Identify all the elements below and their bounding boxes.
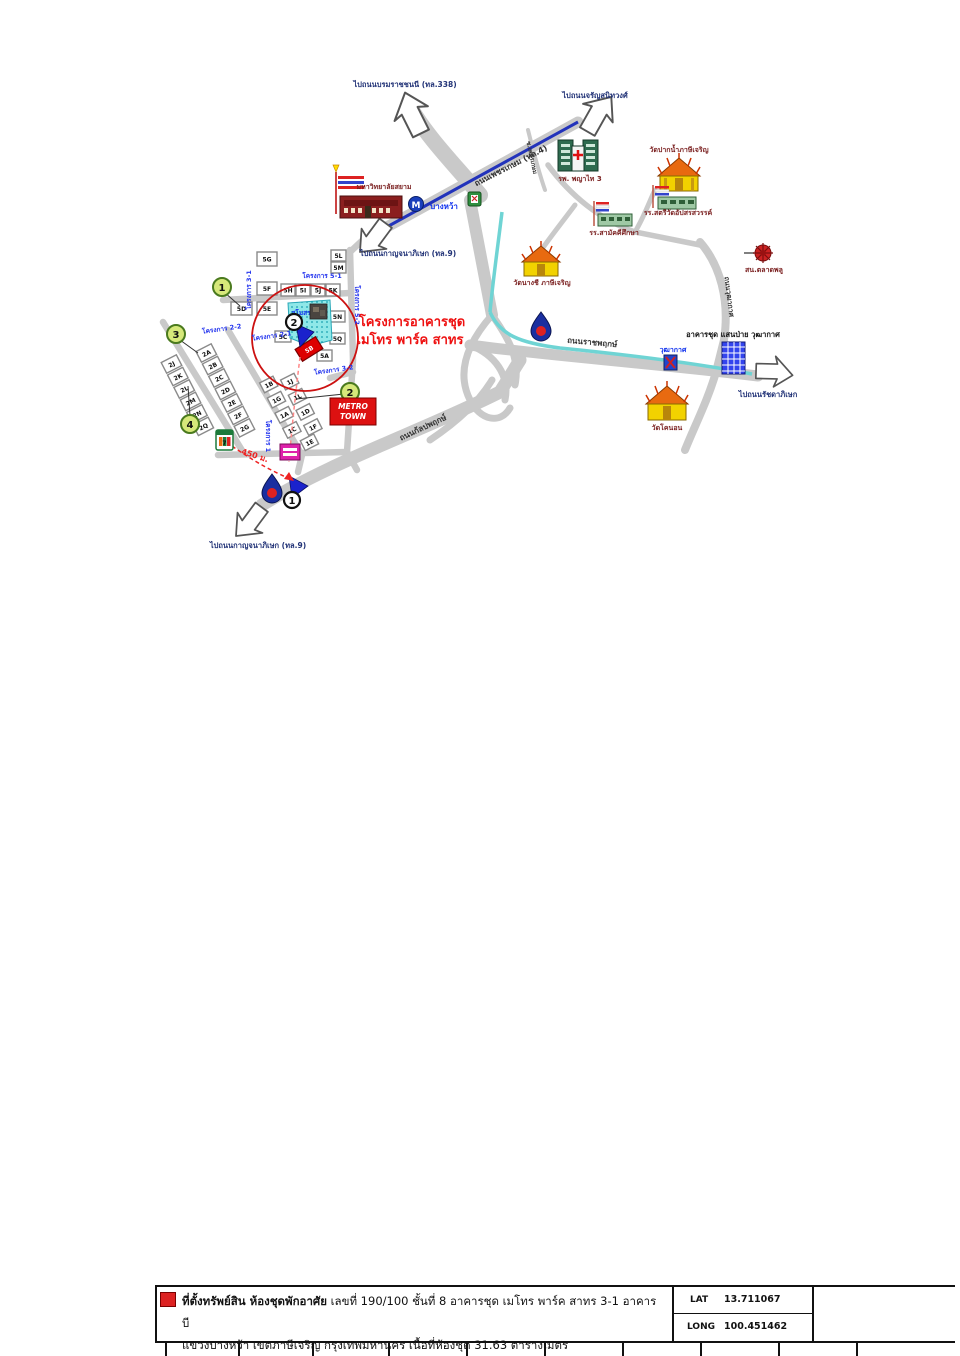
entrance-marker-1: 1 (289, 496, 296, 507)
university-icon (333, 165, 402, 218)
svg-text:M: M (412, 201, 421, 211)
project-name-line1: โครงการอาคารชุด (358, 313, 466, 330)
temple-nangchi-icon (522, 241, 560, 276)
road-label-kalpaphruek: ถนนกัลปพฤกษ์ (398, 412, 449, 443)
green-marker-1: 1 (219, 283, 226, 294)
block-label: 5J (315, 288, 321, 295)
school-satri-label: รร.สตรีวัดอัปสรสวรรค์ (644, 208, 713, 217)
arrow-label-kanchana-mid: ไปถนนกาญจนาภิเษก (ทล.9) (359, 248, 456, 258)
project-name-line2: เมโทร พาร์ค สาทร (357, 331, 464, 348)
arrow-ratchada (753, 353, 796, 390)
block-label: 5G (262, 257, 271, 264)
metro-town-label-1: METRO (338, 402, 368, 411)
next-row-tick (466, 1343, 468, 1356)
block-label: 5A (320, 353, 329, 360)
page: { "map": { "arrow_labels": { "borom": "ไ… (0, 0, 960, 720)
school-samakkhi-label: รร.สามัคคีศึกษา (589, 228, 639, 237)
green-bank-icon (468, 192, 481, 206)
table-border-right (812, 1285, 814, 1343)
next-row-tick (165, 1343, 167, 1356)
arrow-label-ratchada: ไปถนนรัชดาภิเษก (738, 389, 798, 399)
map-canvas: ไปถนนบรมราชชนนี (ทล.338) ไปถนนจรัญสนิทวง… (0, 0, 960, 640)
arrow-label-borom: ไปถนนบรมราชชนนี (ทล.338) (352, 79, 456, 89)
block-label: 5I (300, 288, 306, 295)
temple-paknam-icon (658, 153, 700, 191)
block-label: 5N (333, 314, 342, 321)
road-ne-3 (540, 205, 575, 252)
hospital-label: รพ. พญาไท 3 (558, 174, 602, 183)
hospital-icon (558, 140, 598, 171)
gas-station-icon-south (262, 474, 282, 503)
table-border-top (155, 1285, 955, 1287)
svg-text:7: 7 (222, 440, 226, 447)
temple-paknam-label: วัดปากน้ำภาษีเจริญ (649, 143, 708, 154)
long-value: 100.451462 (724, 1321, 787, 1332)
table-border-left (155, 1285, 157, 1343)
property-description-bold: ที่ตั้งทรัพย์สิน ห้องชุดพักอาศัย (182, 1294, 327, 1308)
metro-station-label: บางหว้า (430, 201, 458, 211)
bts-station-icon (664, 355, 677, 370)
block-label: 5Q (333, 336, 342, 343)
block-label: 5M (333, 265, 343, 272)
next-row-tick (622, 1343, 624, 1356)
block-label: 5L (335, 253, 343, 260)
bts-station-label: วุฒากาศ (660, 346, 687, 354)
subproject-3-1: โครงการ 3-1 (244, 270, 253, 311)
metro-town-label-2: TOWN (340, 412, 367, 421)
school-samakkhi-icon (594, 201, 632, 226)
long-label: LONG (687, 1322, 715, 1332)
property-description-line1: ที่ตั้งทรัพย์สิน ห้องชุดพักอาศัย เลขที่ … (182, 1294, 656, 1330)
police-station-icon (744, 243, 773, 263)
property-info-table: ที่ตั้งทรัพย์สิน ห้องชุดพักอาศัย เลขที่ … (0, 640, 960, 720)
police-station-label: สน.ตลาดพลู (745, 266, 783, 275)
green-marker-4: 4 (187, 420, 194, 431)
next-row-tick (388, 1343, 390, 1356)
table-divider (672, 1285, 674, 1343)
lat-label: LAT (690, 1295, 708, 1305)
route-arrowhead (284, 472, 294, 481)
lat-value: 13.711067 (724, 1294, 781, 1305)
green-marker-2: 2 (347, 388, 354, 399)
road-label-ratchaphruek: ถนนราชพฤกษ์ (567, 335, 619, 349)
block-label: 5F (263, 286, 271, 293)
property-description: ที่ตั้งทรัพย์สิน ห้องชุดพักอาศัย เลขที่ … (182, 1290, 666, 1338)
latlong-divider (672, 1313, 812, 1314)
next-row-tick (778, 1343, 780, 1356)
entrance-marker-2: 2 (291, 318, 298, 329)
road-south-of-station (470, 200, 492, 315)
condo-wutthakat-label: อาคารชุด แสนป่าย วุฒากาศ (686, 330, 780, 339)
next-row-tick (238, 1343, 240, 1356)
arrow-label-kanchana-south: ไปถนนกาญจนาภิเษก (ทล.9) (209, 540, 306, 550)
subproject-5-2: โครงการ 5-2 (353, 284, 362, 325)
subproject-5-1: โครงการ 5-1 (301, 271, 342, 280)
seven-eleven-icon: 7 (216, 430, 233, 450)
next-row-tick (544, 1343, 546, 1356)
temple-khonon-label: วัดโคนอน (652, 423, 683, 432)
condo-flats-icon (722, 342, 745, 374)
temple-khonon-icon (646, 381, 688, 420)
road-wutthakat (685, 242, 726, 450)
canal-north (490, 212, 502, 312)
university-label: มหาวิทยาลัยสยาม (356, 183, 411, 191)
pink-shop-sign (280, 444, 300, 460)
next-row-tick (700, 1343, 702, 1356)
metro-town-sign: METRO TOWN (330, 398, 376, 425)
arrow-label-charan: ไปถนนจรัญสนิทวงศ์ (561, 90, 628, 100)
metro-station-icon: M (409, 197, 424, 212)
green-marker-3: 3 (173, 330, 180, 341)
subproject-1: โครงการ 1 (264, 419, 273, 453)
next-row-tick (856, 1343, 858, 1356)
block-label: 5E (263, 306, 271, 313)
gas-station-icon-ratchaphruek (531, 312, 551, 341)
subproject-2-2: โครงการ 2-2 (200, 321, 241, 336)
next-row-tick (312, 1343, 314, 1356)
subject-legend-swatch (160, 1292, 176, 1307)
temple-nangchi-label: วัดนางชี ภาษีเจริญ (513, 279, 570, 287)
